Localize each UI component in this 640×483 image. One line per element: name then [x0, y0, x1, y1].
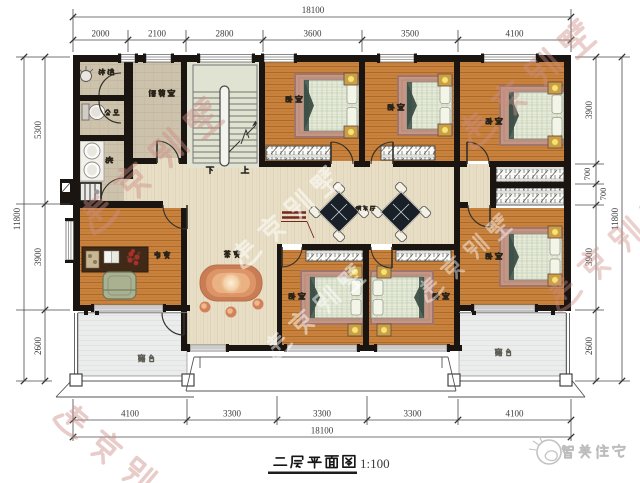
svg-text:700: 700	[582, 168, 592, 181]
svg-text:3900: 3900	[33, 248, 43, 267]
svg-text:700: 700	[598, 188, 608, 201]
svg-text:3500: 3500	[401, 29, 420, 39]
svg-text:18100: 18100	[302, 5, 325, 15]
svg-text:3600: 3600	[304, 29, 323, 39]
svg-text:5300: 5300	[33, 121, 43, 140]
svg-text:2600: 2600	[33, 337, 43, 356]
svg-text:2100: 2100	[148, 29, 167, 39]
svg-text:2000: 2000	[92, 29, 111, 39]
svg-text:4100: 4100	[506, 409, 525, 419]
svg-text:3300: 3300	[313, 409, 332, 419]
svg-text:18100: 18100	[311, 426, 334, 436]
svg-text:3300: 3300	[404, 409, 423, 419]
svg-text:3900: 3900	[584, 101, 594, 120]
svg-text:2600: 2600	[584, 337, 594, 356]
svg-text:3300: 3300	[223, 409, 242, 419]
svg-text:2800: 2800	[216, 29, 235, 39]
svg-text:1:100: 1:100	[360, 456, 390, 471]
svg-text:11800: 11800	[12, 207, 22, 230]
svg-text:4100: 4100	[121, 409, 140, 419]
svg-text:4100: 4100	[506, 29, 525, 39]
